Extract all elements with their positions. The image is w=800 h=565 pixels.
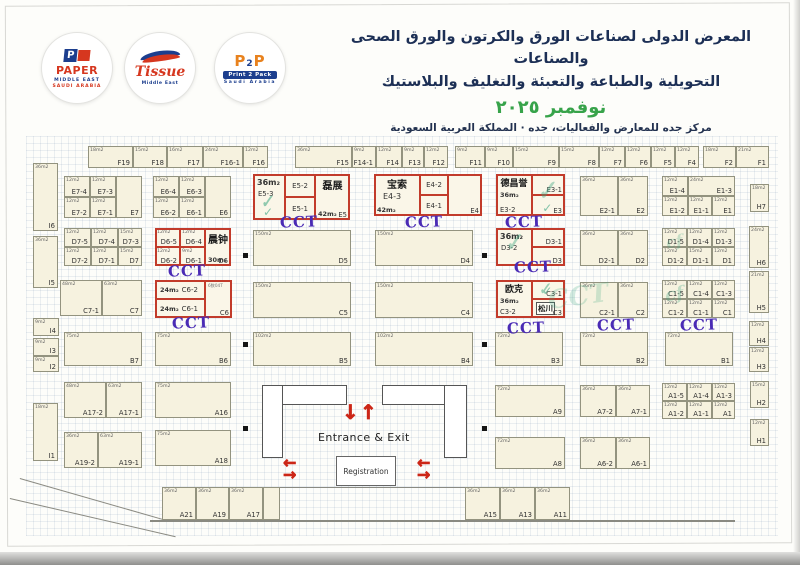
booth-id: F16-1 bbox=[221, 159, 240, 167]
booth-C3-2: 36m₂欧克C3-2 bbox=[496, 280, 532, 318]
booth-size: 36m2 bbox=[231, 488, 244, 493]
booth-A1-3: 12m2A1-3 bbox=[712, 383, 735, 401]
booth-size: 15m2 bbox=[120, 248, 133, 253]
wall-line bbox=[280, 487, 465, 488]
booth-size: 36m2 bbox=[467, 488, 480, 493]
booth-size: 12m2 bbox=[66, 177, 79, 182]
cct-annotation: CCT bbox=[507, 318, 546, 337]
booth-id: A19 bbox=[213, 511, 226, 519]
cct-annotation: CCT bbox=[405, 212, 444, 231]
booth-size: 12m2 bbox=[714, 197, 727, 202]
booth-id: D1-2 bbox=[668, 257, 684, 265]
booth-A17-2: 48m2A17-2 bbox=[64, 382, 106, 418]
booth-B6: 75m2B6 bbox=[155, 332, 231, 366]
booth-id: F18 bbox=[151, 159, 164, 167]
booth-size: 36m2 bbox=[164, 488, 177, 493]
booth-size: 12m2 bbox=[426, 147, 439, 152]
booth-id: F19 bbox=[117, 159, 130, 167]
booth-id: F12 bbox=[432, 159, 445, 167]
exhibitor-name: 欧克 bbox=[497, 282, 531, 295]
booth-size: 12m2 bbox=[689, 384, 702, 389]
booth-I6: 36m2I6 bbox=[33, 163, 58, 231]
booth-id: C7 bbox=[130, 307, 139, 315]
booth-A17-1: 63m2A17-1 bbox=[106, 382, 142, 418]
booth-H4: 12m2H4 bbox=[749, 321, 769, 346]
booth-id: D7-1 bbox=[99, 257, 115, 265]
direction-arrow: → bbox=[283, 465, 296, 484]
booth-id: H1 bbox=[757, 437, 766, 445]
booth-id: E6-2 bbox=[161, 209, 176, 217]
booth-size: 72m2 bbox=[497, 386, 510, 391]
booth-D1-4: 12m2D1-4 bbox=[687, 228, 712, 247]
booth-E5-2: E5-2 bbox=[285, 174, 315, 197]
booth-A17: 36m2A17 bbox=[229, 487, 263, 520]
cct-annotation: CCT bbox=[514, 257, 553, 276]
booth-id: E4-2 bbox=[426, 181, 442, 189]
booth-size: 12m2 bbox=[714, 229, 727, 234]
booth-E1-2: 12m2E1-2 bbox=[662, 196, 688, 216]
booth-A21: 36m2A21 bbox=[162, 487, 196, 520]
booth-id: C6-1 bbox=[182, 305, 198, 313]
booth-id: D4 bbox=[460, 257, 470, 265]
booth-size: 9m2 bbox=[457, 147, 468, 152]
booth-size: 36m2 bbox=[620, 177, 633, 182]
booth-A7-1: 36m2A7-1 bbox=[616, 385, 650, 417]
booth-id: F2 bbox=[725, 159, 733, 167]
paper-logo-sub1: MIDDLE EAST bbox=[54, 78, 100, 83]
booth-size: 9m2 bbox=[35, 319, 46, 324]
booth-D1: 12m2D1 bbox=[712, 247, 735, 266]
booth-id: E4-3 bbox=[383, 192, 401, 201]
booth-F5: 12m2F5 bbox=[651, 146, 675, 168]
booth-id: A18 bbox=[215, 457, 228, 465]
booth-C6-2: 24m₂C6-2 bbox=[155, 280, 205, 299]
booth-size: 16m2 bbox=[169, 147, 182, 152]
booth-E6-2: 12m2E6-2 bbox=[153, 197, 179, 218]
booth-size: 12m2 bbox=[751, 322, 764, 327]
booth-id: C6 bbox=[220, 309, 229, 317]
booth-H7: 18m2H7 bbox=[750, 184, 769, 212]
logo-print-2-pack: P2P Print 2 Pack Saudi Arabia bbox=[215, 33, 285, 103]
booth-size: 12m2 bbox=[182, 229, 195, 234]
booth-size: 24m₂ bbox=[160, 286, 179, 294]
tissue-logo-sub: Middle East bbox=[142, 81, 179, 86]
booth-id: H5 bbox=[757, 304, 766, 312]
booth-id: A15 bbox=[484, 511, 497, 519]
booth-id: E6 bbox=[219, 209, 228, 217]
booth-size: 72m2 bbox=[582, 333, 595, 338]
booth-id: A8 bbox=[553, 460, 562, 468]
floorplan-sheet: P PAPER MIDDLE EAST SAUDI ARABIA Tissue … bbox=[0, 0, 800, 565]
cct-annotation: CCT bbox=[168, 261, 207, 280]
booth-F4: 12m2F4 bbox=[675, 146, 699, 168]
booth-id: D7-4 bbox=[99, 238, 115, 246]
booth-size: 12m2 bbox=[92, 177, 105, 182]
booth-id: E3 bbox=[553, 207, 562, 215]
booth-size: 75m2 bbox=[157, 383, 170, 388]
booth-id: E1-1 bbox=[694, 207, 709, 215]
paper-me-p-mark: P bbox=[63, 49, 78, 62]
booth-F17: 16m2F17 bbox=[167, 146, 203, 168]
booth-size: 75m2 bbox=[157, 431, 170, 436]
booth-F13: 9m2F13 bbox=[402, 146, 424, 168]
booth-id: H6 bbox=[757, 259, 766, 267]
booth-E2: 36m2E2 bbox=[618, 176, 648, 216]
booth-id: F8 bbox=[588, 159, 596, 167]
booth-F6: 12m2F6 bbox=[625, 146, 651, 168]
booth-size: 12m2 bbox=[664, 402, 677, 407]
booth-D3-1: D3-1 bbox=[532, 228, 565, 247]
booth-size: 36m₂ bbox=[257, 178, 280, 187]
booth-id: A1-5 bbox=[668, 392, 684, 400]
booth-E1-1: 12m2E1-1 bbox=[688, 196, 712, 216]
booth-size: 36m2 bbox=[198, 488, 211, 493]
booth-size: 75m2 bbox=[157, 333, 170, 338]
logo-paper-middle-east: P PAPER MIDDLE EAST SAUDI ARABIA bbox=[42, 33, 112, 103]
booth-id: D1 bbox=[722, 257, 732, 265]
booth-size: 12m2 bbox=[245, 147, 258, 152]
booth-id: E4-1 bbox=[426, 202, 442, 210]
cct-annotation: CCT bbox=[505, 212, 544, 231]
booth-size: 63m2 bbox=[100, 433, 113, 438]
booth-id: A7-1 bbox=[631, 408, 647, 416]
booth-id: A1-4 bbox=[693, 392, 709, 400]
header-text-block: المعرض الدولى لصناعات الورق والكرتون وال… bbox=[320, 26, 782, 134]
booth-size: 48m2 bbox=[62, 281, 75, 286]
booth-id: C6-2 bbox=[182, 286, 198, 294]
booth-id: I3 bbox=[50, 347, 56, 355]
booth-E4-3: 42m₂宝索E4-3 bbox=[374, 174, 420, 216]
booth-size: 36m2 bbox=[66, 433, 79, 438]
booth-E3-2: 36m₂德昌誉E3-2 bbox=[496, 174, 532, 216]
booth-id: H4 bbox=[757, 337, 766, 345]
booth-size: 12m2 bbox=[690, 197, 703, 202]
booth-id: F13 bbox=[408, 159, 421, 167]
booth-size: 9m2 bbox=[354, 147, 365, 152]
booth-A16: 75m2A16 bbox=[155, 382, 231, 418]
direction-arrow: → bbox=[417, 465, 430, 484]
booth-size: 12m2 bbox=[689, 402, 702, 407]
photo-edge-right bbox=[793, 0, 800, 565]
booth-size: 9m2 bbox=[404, 147, 415, 152]
booth-C7: 63m2C7 bbox=[102, 280, 142, 316]
booth-A1-4: 12m2A1-4 bbox=[687, 383, 712, 401]
entrance-exit-label: Entrance & Exit bbox=[318, 431, 410, 444]
booth-size: 63m2 bbox=[104, 281, 117, 286]
photo-edge-bottom bbox=[0, 552, 800, 565]
booth-id: H3 bbox=[757, 363, 766, 371]
booth-B1: 72m2B1 bbox=[665, 332, 733, 366]
booth-size: 12m2 bbox=[714, 402, 727, 407]
pillar-marker bbox=[243, 253, 248, 258]
cct-annotation: CCT bbox=[280, 212, 319, 231]
booth-E7-2: 12m2E7-2 bbox=[64, 197, 90, 218]
tissue-wave-icon bbox=[140, 51, 180, 63]
booth-E7: E7 bbox=[116, 176, 142, 218]
booth-C7-1: 48m2C7-1 bbox=[60, 280, 102, 316]
booth-id: E7-4 bbox=[72, 188, 87, 196]
booth-size: 72m2 bbox=[667, 333, 680, 338]
booth-id: E5 bbox=[338, 211, 347, 219]
booth-size: 15m2 bbox=[135, 147, 148, 152]
booth-size: 12m2 bbox=[689, 229, 702, 234]
booth-F18: 15m2F18 bbox=[133, 146, 167, 168]
booth-size: 12m2 bbox=[601, 147, 614, 152]
booth-E6-3: 12m2E6-3 bbox=[179, 176, 205, 197]
booth-E7-4: 12m2E7-4 bbox=[64, 176, 90, 197]
booth-size: 75m2 bbox=[66, 333, 79, 338]
booth-size: 24m2 bbox=[690, 177, 703, 182]
booth-id: F1 bbox=[758, 159, 766, 167]
booth-I3: 9m2I3 bbox=[33, 338, 59, 356]
booth-size: 102m2 bbox=[377, 333, 393, 338]
print2pack-logo-title: Print 2 Pack bbox=[223, 71, 276, 79]
booth-size: 12m2 bbox=[155, 198, 168, 203]
booth-size: 12m2 bbox=[157, 248, 170, 253]
booth-size: 36m₂ bbox=[500, 191, 519, 199]
pillar-marker bbox=[243, 342, 248, 347]
booth-id: E7-2 bbox=[72, 209, 87, 217]
booth-A19: 36m2A19 bbox=[196, 487, 229, 520]
booth-id: C1-3 bbox=[716, 290, 732, 298]
registration-desk: Registration bbox=[336, 456, 396, 486]
booth-size: 9m2 bbox=[182, 248, 193, 253]
booth-size: 36m2 bbox=[618, 438, 631, 443]
booth-id: E1-3 bbox=[717, 187, 732, 195]
booth-D1-3: 12m2D1-3 bbox=[712, 228, 735, 247]
booth-id: E6-1 bbox=[187, 209, 202, 217]
booth-F9: 15m2F9 bbox=[513, 146, 559, 168]
booth-id: F14-1 bbox=[354, 159, 373, 167]
booth-id: D7 bbox=[129, 257, 139, 265]
exhibitor-name: 宝索 bbox=[375, 176, 419, 191]
booth-id: E2 bbox=[636, 207, 645, 215]
pillar-marker bbox=[482, 426, 487, 431]
booth-I5: 36m2I5 bbox=[33, 236, 58, 288]
booth-A1-2: 12m2A1-2 bbox=[662, 401, 687, 419]
booth-id: C2 bbox=[636, 309, 645, 317]
booth-id: D7-5 bbox=[72, 238, 88, 246]
paper-logo-sub2: SAUDI ARABIA bbox=[53, 84, 102, 89]
booth-id: E4 bbox=[470, 207, 479, 215]
booth-F14: 12m2F14 bbox=[376, 146, 402, 168]
booth-D7-2: 12m2D7-2 bbox=[64, 247, 91, 266]
booth-B2: 72m2B2 bbox=[580, 332, 648, 366]
booth-D7-5: 12m2D7-5 bbox=[64, 228, 91, 247]
booth-size: 12m2 bbox=[714, 384, 727, 389]
booth-id: A17-1 bbox=[119, 409, 139, 417]
direction-arrow: ↓ bbox=[342, 400, 359, 424]
booth-size: 18m2 bbox=[705, 147, 718, 152]
booth-size: 36m2 bbox=[582, 177, 595, 182]
booth-id: B5 bbox=[339, 357, 348, 365]
print2pack-p2p-icon: P2P bbox=[234, 52, 265, 70]
booth-D6: 30m₂晨钟D6 bbox=[205, 228, 231, 266]
booth-size: 42m₂ bbox=[377, 206, 396, 214]
booth-id: A1 bbox=[723, 410, 732, 418]
booth-id: D6-4 bbox=[186, 238, 202, 246]
booth-size: 12m2 bbox=[751, 348, 764, 353]
booth-id: A19-1 bbox=[119, 459, 139, 467]
booth-size: 12m2 bbox=[714, 300, 727, 305]
entrance-wall bbox=[382, 385, 445, 405]
booth-size: 150m2 bbox=[377, 283, 393, 288]
pillar-marker bbox=[243, 426, 248, 431]
booth-size: 12m2 bbox=[714, 281, 727, 286]
booth-E7-3: 12m2E7-3 bbox=[90, 176, 116, 197]
booth-id: H2 bbox=[757, 399, 766, 407]
booth-size: 12m2 bbox=[378, 147, 391, 152]
booth-size: 24m₂ bbox=[160, 305, 179, 313]
exhibitor-name: 磊展 bbox=[316, 177, 349, 192]
booth-size: 63m2 bbox=[108, 383, 121, 388]
booth-A7-2: 36m2A7-2 bbox=[580, 385, 616, 417]
booth-H5: 21m2H5 bbox=[749, 271, 769, 313]
booth-id: D6 bbox=[218, 257, 228, 265]
pillar-marker bbox=[482, 253, 487, 258]
booth-size: 12m2 bbox=[664, 177, 677, 182]
booth-id: E1-4 bbox=[670, 187, 685, 195]
booth-size: 15m2 bbox=[752, 382, 765, 387]
tissue-logo-title: Tissue bbox=[135, 64, 186, 80]
booth-id: A19-2 bbox=[75, 459, 95, 467]
booth-C4: 150m2C4 bbox=[375, 282, 473, 318]
booth-id: F17 bbox=[187, 159, 200, 167]
booth-F7: 12m2F7 bbox=[599, 146, 625, 168]
booth-D7-4: 12m2D7-4 bbox=[91, 228, 118, 247]
booth-size: 12m2 bbox=[677, 147, 690, 152]
booth-E6-1: 12m2E6-1 bbox=[179, 197, 205, 218]
booth-H2: 15m2H2 bbox=[750, 381, 769, 408]
booth-A8: 72m2A8 bbox=[495, 437, 565, 469]
booth-F12: 12m2F12 bbox=[424, 146, 448, 168]
booth-size: 12m2 bbox=[714, 248, 727, 253]
booth-id: D1-3 bbox=[716, 238, 732, 246]
booth-id: C1-4 bbox=[693, 290, 709, 298]
booth-size: 12m2 bbox=[627, 147, 640, 152]
booth-id: H7 bbox=[757, 203, 766, 211]
booth-size: 12m2 bbox=[66, 248, 79, 253]
booth-I4: 9m2I4 bbox=[33, 318, 59, 336]
booth-id: A16 bbox=[215, 409, 228, 417]
booth-size: 12m2 bbox=[66, 198, 79, 203]
booth-A6-2: 36m2A6-2 bbox=[580, 437, 616, 469]
booth-id: E7-3 bbox=[98, 188, 113, 196]
booth-id: B4 bbox=[461, 357, 470, 365]
booth-id: A21 bbox=[180, 511, 193, 519]
booth-A11: 36m2A11 bbox=[535, 487, 570, 520]
booth-size: 72m2 bbox=[497, 438, 510, 443]
scanned-floorplan-photo: P PAPER MIDDLE EAST SAUDI ARABIA Tissue … bbox=[0, 0, 800, 565]
booth-size: 12m2 bbox=[155, 177, 168, 182]
booth-E2-1: 36m2E2-1 bbox=[580, 176, 618, 216]
booth-I1: 18m2I1 bbox=[33, 403, 58, 461]
booth-A18: 75m2A18 bbox=[155, 430, 231, 466]
booth-id: F9 bbox=[548, 159, 556, 167]
booth-A1: 12m2A1 bbox=[712, 401, 735, 419]
booth-id: D7-3 bbox=[123, 238, 139, 246]
booth-id: I4 bbox=[50, 327, 56, 335]
booth-size: 12m2 bbox=[181, 198, 194, 203]
booth-id: F15 bbox=[336, 159, 349, 167]
booth-id: C4 bbox=[461, 309, 470, 317]
exhibition-title-line2: التحويلية والطباعة والتعبئة والتغليف وال… bbox=[320, 71, 782, 93]
booth-I2: 9m2I2 bbox=[33, 356, 59, 372]
booth-F15: 36m2F15 bbox=[295, 146, 352, 168]
booth-D1-1: 15m2D1-1 bbox=[687, 247, 712, 266]
logo-tissue-middle-east: Tissue Middle East bbox=[125, 33, 195, 103]
booth-id: I6 bbox=[49, 222, 55, 230]
booth-id: B1 bbox=[721, 357, 730, 365]
cct-annotation: CCT bbox=[680, 315, 719, 334]
booth-size: 12m2 bbox=[689, 281, 702, 286]
handwritten-mark: cf bbox=[664, 231, 684, 253]
booth-A1-5: 12m2A1-5 bbox=[662, 383, 687, 401]
paper-logo-title: PAPER bbox=[56, 64, 98, 77]
booth-D7-3: 15m2D7-3 bbox=[118, 228, 142, 247]
booth-id: A7-2 bbox=[597, 408, 613, 416]
booth-A15: 36m2A15 bbox=[465, 487, 500, 520]
booth-size: 15m2 bbox=[561, 147, 574, 152]
booth-F1: 21m2F1 bbox=[736, 146, 769, 168]
booth-id: C5 bbox=[339, 309, 348, 317]
booth-id: F11 bbox=[469, 159, 482, 167]
booth-size: 9m2 bbox=[35, 339, 46, 344]
booth-A19-1: 63m2A19-1 bbox=[98, 432, 142, 468]
booth-size: 36m2 bbox=[620, 283, 633, 288]
booth-size: 12m2 bbox=[93, 248, 106, 253]
exhibition-venue: مركز جده للمعارض والفعاليات، جده · الممل… bbox=[320, 122, 782, 134]
booth-E6: E6 bbox=[205, 176, 231, 218]
booth-id: E6-3 bbox=[187, 188, 202, 196]
booth-size: 12m2 bbox=[181, 177, 194, 182]
booth-size: 42m₂ bbox=[318, 210, 337, 218]
booth-D6-5: 12m2D6-5 bbox=[155, 228, 180, 247]
booth-id: E1-2 bbox=[670, 207, 685, 215]
booth-size: 12m2 bbox=[664, 197, 677, 202]
booth-id: A17 bbox=[247, 511, 260, 519]
booth-id: D3-1 bbox=[546, 238, 562, 246]
booth-size: 150m2 bbox=[255, 231, 271, 236]
red-flag-shape bbox=[78, 50, 91, 61]
booth-B3: 72m2B3 bbox=[495, 332, 563, 366]
booth-E7-1: 12m2E7-1 bbox=[90, 197, 116, 218]
booth-id: D3 bbox=[552, 257, 562, 265]
booth-C5: 150m2C5 bbox=[253, 282, 351, 318]
exhibitor-name: 晨钟 bbox=[206, 231, 230, 246]
booth-id: E2-1 bbox=[600, 207, 615, 215]
booth-id: C3-2 bbox=[500, 308, 516, 316]
booth-id: A9 bbox=[553, 408, 562, 416]
booth-id: F7 bbox=[614, 159, 622, 167]
exhibition-date: نوفمبر ٢٠٢٥ bbox=[320, 97, 782, 118]
pillar-marker bbox=[482, 342, 487, 347]
booth-C2: 36m2C2 bbox=[618, 282, 648, 318]
booth-id: E6-4 bbox=[161, 188, 176, 196]
booth-id: B2 bbox=[636, 357, 645, 365]
booth-F10: 9m2F10 bbox=[485, 146, 513, 168]
booth-size: 36m2 bbox=[582, 438, 595, 443]
booth-size: 36m2 bbox=[537, 488, 550, 493]
booth-id: D1-1 bbox=[693, 257, 709, 265]
print2pack-logo-sub: Saudi Arabia bbox=[224, 80, 276, 85]
booth-E1-3: 24m2E1-3 bbox=[688, 176, 735, 196]
booth-size: 48m2 bbox=[66, 383, 79, 388]
booth-id: I1 bbox=[49, 452, 55, 460]
booth-E6-4: 12m2E6-4 bbox=[153, 176, 179, 197]
handwritten-mark: cf bbox=[663, 283, 685, 307]
booth-size: 9m2 bbox=[35, 357, 46, 362]
